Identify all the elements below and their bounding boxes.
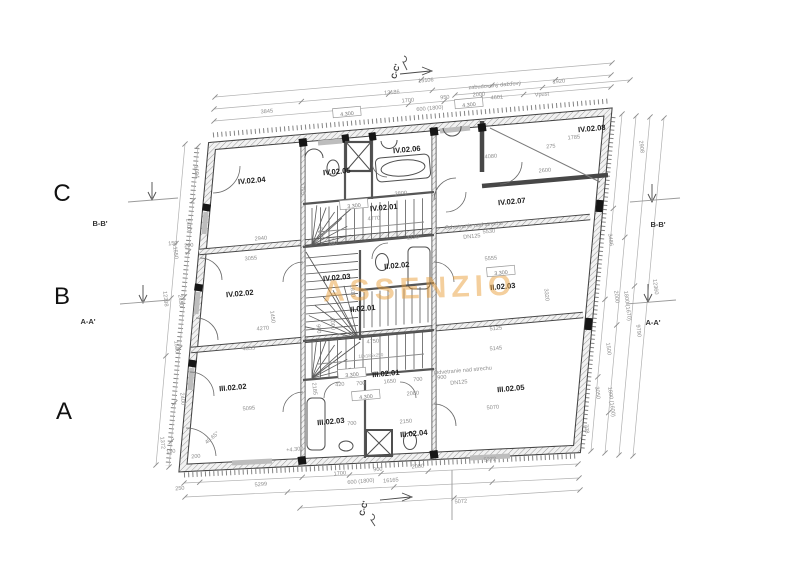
- dimension-text: 4355: [242, 345, 255, 352]
- sink: [339, 441, 353, 451]
- dimension-text: 275: [546, 144, 556, 151]
- dimension-text: 3800: [394, 190, 407, 197]
- room-label: IV.02.06: [393, 144, 421, 155]
- dimension-text: 2940: [254, 235, 267, 242]
- grid-row-label: C: [53, 180, 70, 207]
- dimension-text: 600 (1800): [416, 105, 444, 113]
- dimension-text: 2450: [176, 294, 183, 307]
- dimension-text: 12360: [651, 279, 659, 295]
- dimension-text: 950: [440, 95, 450, 102]
- stair-tread: [306, 253, 358, 258]
- dimension-text: 1650: [383, 378, 396, 385]
- dimension-text: 3055: [244, 255, 257, 262]
- dimension-text: 2185: [310, 382, 317, 395]
- dimension-text: 3320: [542, 288, 549, 301]
- dimension-text: 2080: [406, 390, 419, 397]
- annotation-text: Vpust: [535, 91, 550, 98]
- section-label: B-B': [92, 219, 107, 228]
- dimension-text: 1700: [333, 470, 346, 477]
- level-mark-text: 3.300: [347, 203, 361, 210]
- dimension-text: 2150: [399, 418, 412, 425]
- dimension-text: 1500: [172, 340, 179, 353]
- section-label: C-C': [389, 63, 402, 80]
- dimension-text: 4080: [484, 153, 497, 160]
- dimension-text: 3845: [260, 108, 273, 115]
- bathtub: [375, 154, 431, 183]
- room-label: III.02.05: [497, 383, 526, 394]
- dimension-text: 5072: [454, 498, 467, 505]
- sink: [305, 149, 323, 158]
- dimension-text: 5299: [254, 481, 267, 488]
- floor-plan-page: 1318615106384517009502000600 (1800)46011…: [0, 0, 800, 567]
- section-arrow-cc-bottom: [380, 493, 412, 501]
- level-mark-text: 3.300: [494, 270, 508, 277]
- dimension-text: 5555: [484, 255, 497, 262]
- grid-row-label: B: [54, 283, 70, 310]
- section-label: A-A': [645, 318, 660, 327]
- dimension-text: 900: [315, 324, 322, 334]
- grid-row-label: A: [56, 398, 72, 425]
- dimension-text: 700: [356, 381, 366, 388]
- dimension-text: 2400: [184, 218, 191, 231]
- dimension-text: 1725: [298, 182, 305, 195]
- dimension-text: 2400: [178, 392, 185, 405]
- dimension-text: 5272: [483, 456, 496, 463]
- dimension-text: 16165: [383, 477, 399, 484]
- dimension-text: 1500: [604, 342, 611, 355]
- room-label: IV.02.01: [370, 202, 399, 213]
- section-label: C-C': [357, 500, 370, 517]
- dimension-text: 2000: [411, 463, 424, 470]
- dimension-text: 3050: [593, 386, 600, 399]
- room-label: III.02.03: [317, 416, 345, 427]
- dimension-text: 15106: [418, 77, 434, 84]
- dimension-text: 5070: [486, 404, 499, 411]
- room-label: III.02.04: [400, 428, 429, 439]
- dimension-text: 150: [168, 241, 178, 248]
- level-mark-text: 4.300: [359, 394, 373, 401]
- room-label: IV.02.02: [226, 288, 254, 299]
- annotation-text: DN125: [450, 379, 468, 386]
- dimension-text: 738: [582, 424, 589, 434]
- dimension-text: 1800 (1600): [606, 387, 616, 418]
- level-mark-text: 3.300: [345, 372, 359, 379]
- dimension-text: 1372: [158, 436, 165, 449]
- dimension-text: 100: [328, 241, 338, 248]
- room-label: IV.02.08: [578, 123, 606, 134]
- dimension-text: 200: [184, 243, 194, 250]
- dimension-text: 1450: [268, 310, 275, 323]
- dimension-text: 5145: [489, 345, 502, 352]
- room-label: IV.02.04: [238, 175, 267, 186]
- dimension-text: 9790: [634, 324, 641, 337]
- dimension-text: 5095: [242, 405, 255, 412]
- dimension-text: 600 (1800): [347, 478, 375, 486]
- level-mark-text: 4.300: [340, 111, 354, 118]
- dimension-text: 4770: [367, 215, 380, 222]
- dimension-text: 250: [175, 486, 185, 493]
- dimension-text: 150: [166, 449, 176, 456]
- shower: [366, 430, 392, 456]
- dimension-text: 5125: [489, 325, 502, 332]
- level-mark-text: 4.300: [462, 102, 476, 109]
- annotation-text: DN125: [463, 233, 481, 240]
- room-label: IV.02.07: [498, 196, 526, 207]
- section-hook-cc-bottom: [371, 514, 375, 526]
- dimension-text: 1130: [407, 234, 420, 241]
- room-label: III.02.01: [372, 368, 401, 379]
- dimension-text: 4270: [256, 325, 269, 332]
- dimension-text: 2000: [612, 290, 619, 303]
- dimension-text: 2600: [538, 167, 551, 174]
- dimension-text: 12398: [161, 291, 169, 307]
- dimension-text: 1700: [401, 97, 414, 104]
- room-label: II.02.02: [384, 260, 410, 271]
- section-label: B-B': [650, 220, 665, 229]
- dimension-text: 2000: [328, 317, 335, 330]
- section-hook-cc-top: [403, 56, 407, 70]
- dimension-text: 3486: [606, 233, 613, 246]
- section-arrow-cc-top: [400, 67, 432, 75]
- dimension-text: 4750: [366, 338, 379, 345]
- dimension-text: 1920: [552, 78, 565, 85]
- dimension-text: 700: [413, 377, 423, 384]
- dimension-text: 2908: [637, 140, 644, 153]
- floor-plan-canvas: 1318615106384517009502000600 (1800)46011…: [0, 0, 800, 567]
- annotation-text: Odvetranie nad strechu: [434, 365, 492, 376]
- dimension-text: 4601: [490, 94, 503, 101]
- dimension-text: 700: [347, 421, 357, 428]
- dimension-text: 13186: [384, 89, 400, 96]
- dimension-text: 900: [373, 467, 383, 474]
- dimension-text: 1800 (1670): [622, 291, 632, 322]
- room-label: III.02.02: [219, 382, 247, 393]
- section-label: A-A': [80, 317, 95, 326]
- dimension-text: 200: [191, 454, 201, 461]
- dimension-text: 5530: [482, 228, 495, 235]
- dimension-text: 1550: [171, 246, 178, 259]
- dimension-text: 1004: [192, 165, 199, 178]
- dimension-text: 420: [335, 382, 345, 389]
- dimension-text: 1785: [567, 134, 580, 141]
- room-label: IV.02.05: [323, 166, 352, 177]
